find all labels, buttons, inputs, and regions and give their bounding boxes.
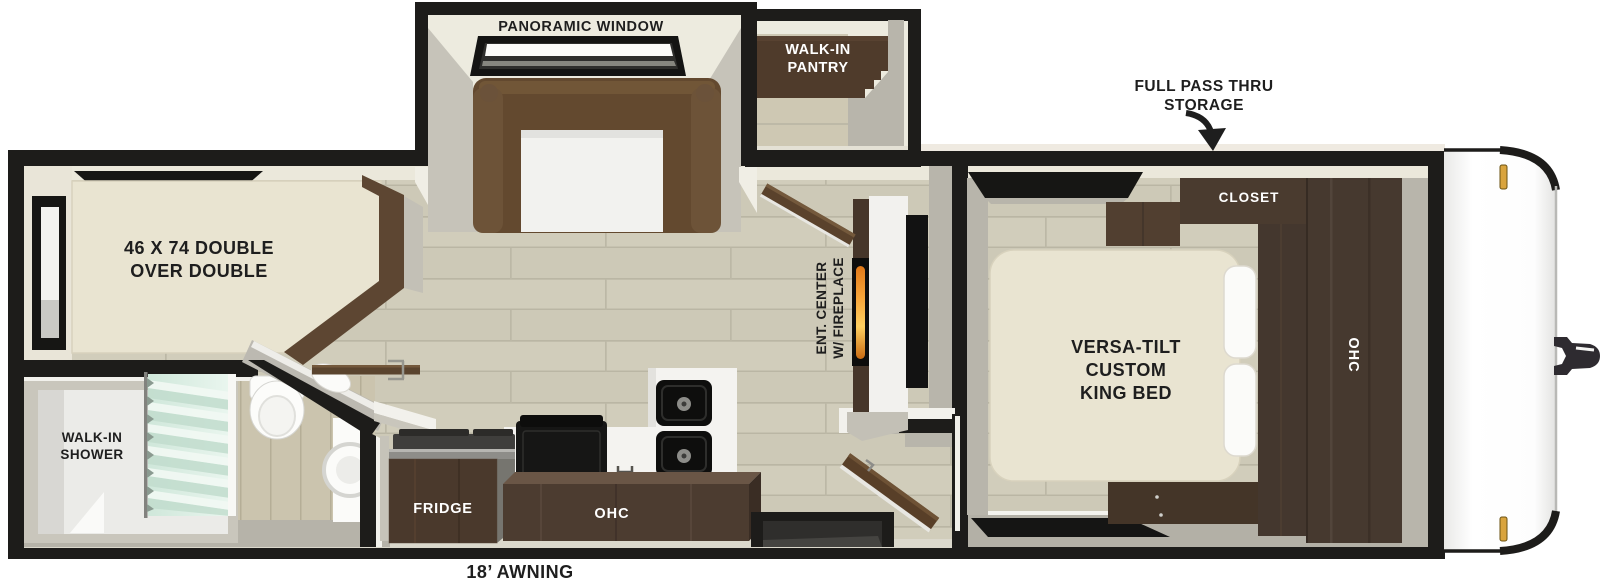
svg-text:WALK-IN: WALK-IN [62, 430, 123, 445]
svg-text:WALK-IN: WALK-IN [785, 42, 851, 58]
svg-text:SHOWER: SHOWER [60, 447, 123, 462]
svg-text:ENT. CENTER: ENT. CENTER [814, 262, 829, 355]
svg-text:18’ AWNING: 18’ AWNING [466, 562, 573, 581]
svg-text:OHC: OHC [1345, 337, 1361, 372]
svg-text:PANTRY: PANTRY [788, 60, 849, 76]
svg-text:FULL PASS THRU: FULL PASS THRU [1134, 78, 1273, 95]
svg-text:OVER DOUBLE: OVER DOUBLE [130, 261, 268, 281]
svg-text:46 X 74 DOUBLE: 46 X 74 DOUBLE [124, 238, 274, 258]
svg-text:KING BED: KING BED [1080, 383, 1172, 403]
svg-text:W/ FIREPLACE: W/ FIREPLACE [831, 257, 846, 359]
svg-text:STORAGE: STORAGE [1164, 97, 1244, 114]
svg-text:FRIDGE: FRIDGE [413, 501, 473, 517]
svg-text:PANORAMIC WINDOW: PANORAMIC WINDOW [498, 19, 664, 35]
svg-text:OHC: OHC [594, 506, 629, 522]
svg-text:CUSTOM: CUSTOM [1086, 360, 1167, 380]
svg-text:CLOSET: CLOSET [1219, 190, 1280, 205]
svg-text:VERSA-TILT: VERSA-TILT [1071, 337, 1181, 357]
